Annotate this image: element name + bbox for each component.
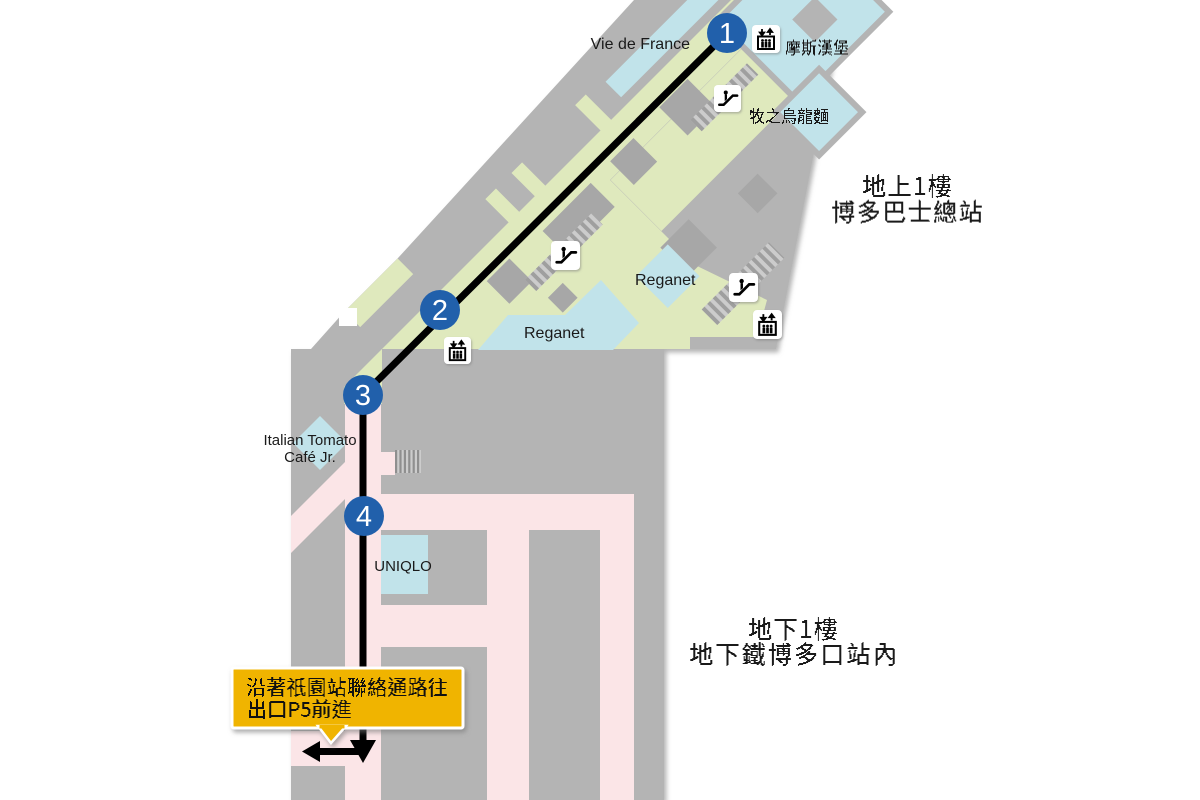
svg-text:Reganet: Reganet [635,272,696,289]
svg-text:Reganet: Reganet [524,325,585,342]
svg-text:1: 1 [719,18,735,50]
svg-text:2: 2 [432,295,448,327]
svg-text:UNIQLO: UNIQLO [374,558,432,575]
svg-text:Café Jr.: Café Jr. [284,449,336,466]
svg-text:3: 3 [355,380,371,412]
svg-text:Vie de France: Vie de France [591,36,690,53]
svg-text:Italian Tomato: Italian Tomato [263,432,356,449]
svg-text:4: 4 [356,501,372,533]
